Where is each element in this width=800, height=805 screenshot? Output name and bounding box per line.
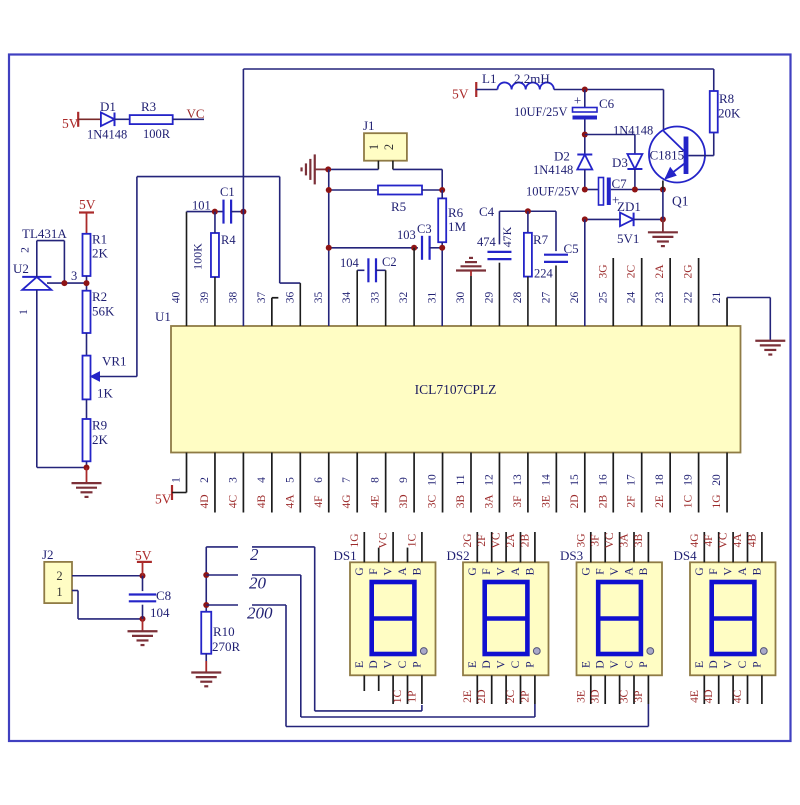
svg-text:22: 22 [683, 292, 695, 304]
svg-text:5V: 5V [62, 116, 79, 131]
svg-text:20: 20 [249, 574, 267, 593]
svg-text:F: F [481, 568, 493, 574]
svg-text:B: B [638, 567, 650, 575]
svg-text:104: 104 [340, 256, 360, 270]
svg-text:3D: 3D [590, 689, 602, 703]
svg-text:100R: 100R [143, 127, 171, 141]
svg-text:1C: 1C [392, 689, 404, 703]
svg-text:4E: 4E [689, 690, 701, 703]
svg-text:DS1: DS1 [334, 548, 357, 563]
svg-text:V: V [383, 567, 395, 576]
svg-text:2: 2 [250, 545, 259, 564]
svg-text:28: 28 [512, 292, 524, 304]
svg-text:V: V [496, 567, 508, 576]
svg-text:224: 224 [534, 267, 554, 281]
svg-text:4C: 4C [227, 494, 239, 508]
svg-text:2E: 2E [462, 690, 474, 703]
svg-text:1M: 1M [448, 219, 467, 234]
svg-text:R8: R8 [719, 91, 734, 106]
svg-text:17: 17 [626, 474, 638, 486]
svg-text:35: 35 [313, 292, 325, 304]
svg-text:38: 38 [227, 292, 239, 304]
svg-text:P: P [638, 661, 650, 667]
svg-text:C8: C8 [156, 588, 171, 603]
svg-text:E: E [467, 661, 479, 668]
svg-text:4A: 4A [732, 533, 744, 548]
svg-text:E: E [354, 661, 366, 668]
svg-text:34: 34 [341, 292, 353, 304]
svg-text:1C: 1C [683, 494, 695, 508]
svg-text:3C: 3C [427, 494, 439, 508]
svg-text:A: A [510, 567, 522, 576]
svg-text:29: 29 [483, 292, 495, 304]
svg-text:R7: R7 [533, 232, 549, 247]
svg-text:24: 24 [626, 292, 638, 304]
svg-text:E: E [694, 661, 706, 668]
svg-text:C4: C4 [479, 204, 495, 219]
svg-text:F: F [368, 568, 380, 574]
svg-text:101: 101 [192, 199, 211, 213]
svg-text:11: 11 [455, 474, 467, 485]
svg-text:1N4148: 1N4148 [533, 163, 573, 177]
svg-text:J1: J1 [363, 118, 375, 133]
svg-text:18: 18 [654, 474, 666, 486]
svg-text:4F: 4F [703, 534, 715, 546]
svg-text:4G: 4G [689, 533, 701, 547]
svg-text:2G: 2G [462, 533, 474, 547]
svg-text:270R: 270R [212, 639, 241, 654]
svg-text:Q1: Q1 [672, 194, 689, 209]
svg-text:14: 14 [540, 474, 552, 486]
svg-text:3G: 3G [597, 264, 609, 278]
svg-text:2D: 2D [476, 689, 488, 703]
svg-text:27: 27 [540, 292, 552, 304]
svg-text:1G: 1G [349, 533, 361, 547]
svg-text:D: D [708, 660, 720, 668]
svg-text:1N4148: 1N4148 [613, 124, 653, 138]
svg-text:A: A [624, 567, 636, 576]
svg-text:R4: R4 [221, 233, 236, 247]
svg-text:2: 2 [20, 247, 32, 253]
svg-text:D: D [368, 660, 380, 668]
svg-text:16: 16 [597, 474, 609, 486]
svg-text:2D: 2D [569, 494, 581, 508]
svg-text:D: D [481, 660, 493, 668]
svg-text:DS2: DS2 [447, 548, 470, 563]
svg-text:G: G [467, 567, 479, 575]
svg-text:2.2mH: 2.2mH [514, 71, 550, 86]
svg-text:C: C [397, 660, 409, 668]
svg-text:V: V [723, 660, 735, 669]
svg-text:A: A [397, 567, 409, 576]
svg-text:2G: 2G [683, 264, 695, 278]
svg-text:R1: R1 [92, 232, 107, 247]
svg-text:F: F [595, 568, 607, 574]
svg-text:30: 30 [455, 292, 467, 304]
svg-text:3A: 3A [483, 494, 495, 509]
svg-text:5V: 5V [155, 492, 172, 507]
svg-text:VC: VC [718, 532, 730, 548]
svg-text:J2: J2 [42, 547, 54, 562]
svg-text:ICL7107CPLZ: ICL7107CPLZ [415, 382, 497, 397]
svg-text:56K: 56K [92, 304, 115, 319]
svg-text:3C: 3C [619, 689, 631, 703]
svg-text:12: 12 [483, 474, 495, 486]
svg-text:6: 6 [313, 477, 325, 483]
svg-text:2: 2 [56, 569, 62, 583]
svg-text:4C: 4C [732, 689, 744, 703]
svg-text:3F: 3F [512, 495, 524, 507]
svg-text:D1: D1 [100, 99, 116, 114]
svg-text:3D: 3D [398, 494, 410, 508]
svg-text:1C: 1C [406, 533, 418, 547]
svg-text:R3: R3 [141, 99, 156, 114]
svg-text:4G: 4G [341, 494, 353, 508]
svg-text:3A: 3A [619, 533, 631, 548]
svg-text:G: G [694, 567, 706, 575]
svg-text:V: V [609, 660, 621, 669]
svg-text:2K: 2K [92, 432, 109, 447]
svg-text:L1: L1 [482, 71, 496, 86]
svg-text:2: 2 [199, 477, 211, 483]
svg-text:9: 9 [398, 477, 410, 483]
svg-text:2P: 2P [519, 690, 531, 702]
svg-text:3: 3 [227, 477, 239, 483]
svg-text:2F: 2F [476, 534, 488, 546]
svg-text:D3: D3 [612, 155, 628, 170]
svg-text:C1: C1 [220, 185, 235, 199]
svg-text:V: V [496, 660, 508, 669]
svg-text:VC: VC [187, 106, 205, 121]
svg-text:2B: 2B [519, 533, 531, 547]
svg-text:3E: 3E [540, 495, 552, 508]
svg-text:3B: 3B [633, 533, 645, 547]
svg-text:7: 7 [341, 477, 353, 483]
svg-text:26: 26 [569, 292, 581, 304]
svg-text:36: 36 [284, 292, 296, 304]
svg-text:A: A [737, 567, 749, 576]
svg-text:ZD1: ZD1 [617, 199, 641, 214]
svg-text:2F: 2F [626, 495, 638, 507]
svg-text:40: 40 [171, 292, 183, 304]
svg-text:3E: 3E [575, 690, 587, 703]
svg-text:100K: 100K [191, 243, 205, 270]
svg-text:VC: VC [604, 532, 616, 548]
svg-text:V: V [609, 567, 621, 576]
svg-text:4F: 4F [313, 495, 325, 507]
svg-text:104: 104 [150, 605, 170, 620]
svg-text:4: 4 [256, 477, 268, 483]
svg-text:R2: R2 [92, 289, 107, 304]
svg-text:20: 20 [711, 474, 723, 486]
svg-text:G: G [580, 567, 592, 575]
svg-text:F: F [708, 568, 720, 574]
svg-text:10UF/25V: 10UF/25V [514, 105, 567, 119]
svg-text:U2: U2 [13, 261, 29, 276]
svg-text:1: 1 [56, 585, 62, 599]
svg-text:3P: 3P [633, 690, 645, 702]
svg-text:+: + [574, 93, 581, 108]
svg-text:200: 200 [247, 604, 273, 623]
svg-text:4E: 4E [370, 495, 382, 508]
svg-text:5V: 5V [135, 548, 152, 563]
svg-text:474: 474 [477, 235, 497, 249]
svg-text:33: 33 [370, 292, 382, 304]
svg-text:C1815: C1815 [650, 148, 685, 163]
svg-text:R6: R6 [448, 205, 464, 220]
svg-text:R10: R10 [213, 624, 235, 639]
svg-text:5V1: 5V1 [617, 231, 639, 246]
svg-text:39: 39 [199, 292, 211, 304]
svg-text:P: P [524, 661, 536, 667]
svg-text:C6: C6 [599, 96, 615, 111]
svg-text:5V: 5V [79, 197, 96, 212]
svg-text:32: 32 [398, 292, 410, 304]
svg-text:C2: C2 [382, 255, 397, 269]
svg-text:103: 103 [397, 228, 416, 242]
svg-text:VC: VC [378, 532, 390, 548]
svg-text:C3: C3 [417, 222, 432, 236]
svg-text:2C: 2C [505, 689, 517, 703]
svg-text:DS4: DS4 [674, 548, 698, 563]
svg-text:1P: 1P [406, 690, 418, 702]
svg-text:10UF/25V: 10UF/25V [526, 185, 579, 199]
svg-text:2A: 2A [505, 533, 517, 548]
svg-text:2: 2 [382, 144, 396, 150]
svg-text:E: E [580, 661, 592, 668]
svg-text:5: 5 [284, 477, 296, 483]
svg-text:2B: 2B [597, 494, 609, 508]
svg-text:C: C [737, 660, 749, 668]
svg-text:31: 31 [427, 292, 439, 304]
svg-text:VR1: VR1 [102, 354, 127, 369]
svg-text:R5: R5 [391, 199, 406, 214]
svg-text:37: 37 [256, 292, 268, 304]
svg-text:3: 3 [71, 269, 77, 283]
svg-text:1K: 1K [97, 386, 114, 401]
svg-text:20K: 20K [718, 106, 741, 121]
svg-text:R9: R9 [92, 418, 107, 433]
svg-text:V: V [383, 660, 395, 669]
svg-text:V: V [723, 567, 735, 576]
svg-text:2A: 2A [654, 264, 666, 279]
svg-text:4B: 4B [256, 494, 268, 508]
svg-text:TL431A: TL431A [22, 226, 67, 241]
svg-text:4D: 4D [703, 689, 715, 703]
svg-text:3F: 3F [590, 534, 602, 546]
svg-text:47K: 47K [500, 226, 514, 247]
svg-text:C: C [510, 660, 522, 668]
svg-text:B: B [751, 567, 763, 575]
svg-text:15: 15 [569, 474, 581, 486]
svg-text:U1: U1 [155, 309, 171, 324]
svg-text:10: 10 [427, 474, 439, 486]
svg-text:P: P [411, 661, 423, 667]
svg-text:P: P [751, 661, 763, 667]
svg-text:4A: 4A [284, 494, 296, 509]
svg-text:5V: 5V [452, 87, 469, 102]
svg-text:4D: 4D [199, 494, 211, 508]
svg-text:25: 25 [597, 292, 609, 304]
svg-text:1: 1 [18, 309, 30, 315]
svg-text:4B: 4B [746, 533, 758, 547]
svg-text:13: 13 [512, 474, 524, 486]
svg-text:2K: 2K [92, 246, 109, 261]
svg-text:C: C [624, 660, 636, 668]
svg-text:21: 21 [711, 292, 723, 304]
svg-text:G: G [354, 567, 366, 575]
svg-text:19: 19 [683, 474, 695, 486]
svg-text:D: D [595, 660, 607, 668]
svg-text:1N4148: 1N4148 [87, 128, 127, 142]
svg-text:23: 23 [654, 292, 666, 304]
svg-text:1G: 1G [711, 494, 723, 508]
svg-text:2C: 2C [626, 264, 638, 278]
svg-text:3G: 3G [575, 533, 587, 547]
svg-text:8: 8 [370, 477, 382, 483]
svg-text:2E: 2E [654, 495, 666, 508]
svg-text:VC: VC [491, 532, 503, 548]
svg-text:3B: 3B [455, 494, 467, 508]
svg-text:C7: C7 [612, 176, 628, 191]
svg-text:1: 1 [367, 144, 381, 150]
svg-text:D2: D2 [554, 149, 570, 164]
svg-text:B: B [524, 567, 536, 575]
svg-text:C5: C5 [564, 241, 579, 256]
svg-text:1: 1 [171, 477, 183, 483]
svg-text:DS3: DS3 [560, 548, 583, 563]
svg-text:B: B [411, 567, 423, 575]
